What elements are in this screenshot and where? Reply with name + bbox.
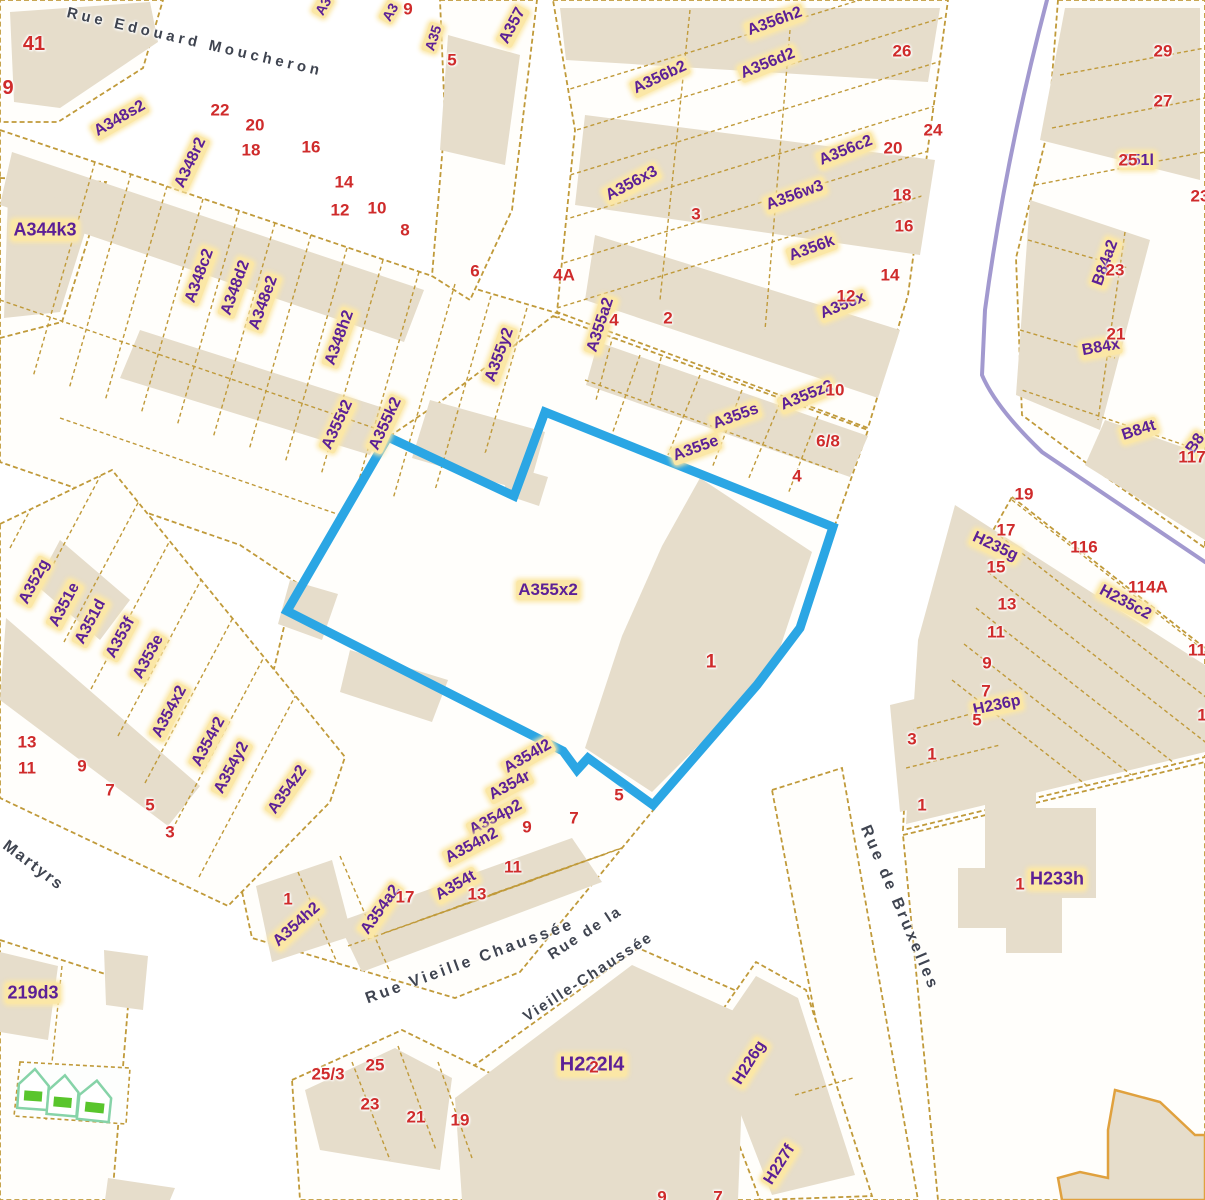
house-icons-group xyxy=(14,1062,130,1124)
map-canvas xyxy=(0,0,1205,1200)
cadastral-map[interactable]: A344k3A348s2A348r2A348c2A348d2A348e2A348… xyxy=(0,0,1205,1200)
